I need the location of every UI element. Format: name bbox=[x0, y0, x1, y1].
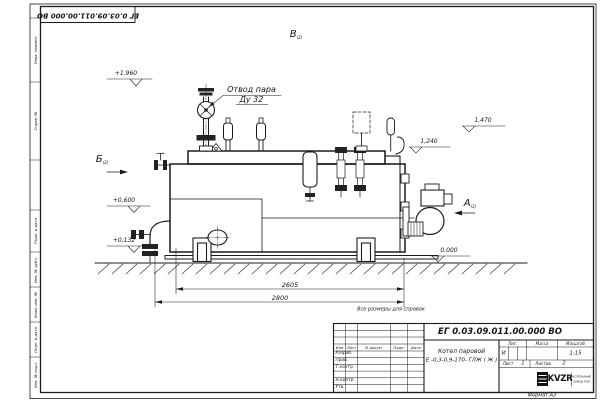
lit-value: И bbox=[502, 351, 506, 357]
margin-label-podp-data-2: Подп. и дата bbox=[34, 327, 38, 353]
sheets-value: 2 bbox=[562, 361, 565, 366]
kvzr-logo-mark bbox=[537, 372, 548, 386]
boiler-body bbox=[165, 144, 438, 262]
level-gauges bbox=[335, 147, 366, 197]
rev-col-list: Лист bbox=[347, 346, 357, 350]
top-designation: ЕГ 0.03.09.011.00.000 ВО bbox=[37, 11, 139, 18]
steam-outlet-valve bbox=[197, 84, 216, 152]
logo-sub-line1: КОТЕЛЬНЫЙ bbox=[572, 375, 590, 378]
logo-text: KVZR bbox=[548, 375, 573, 384]
logo-sub-line2: ЗАВОД РЭП bbox=[573, 380, 590, 383]
elevation-ground: 0,000 bbox=[440, 248, 457, 254]
margin-label-inv-podl: Инв. № подл. bbox=[34, 361, 38, 387]
blueprint-sheet: ЕГ 0.03.09.011.00.000 ВО Перв. примен. С… bbox=[0, 0, 600, 400]
sig-row-nkontr: Н.контр. bbox=[336, 379, 355, 383]
sig-row-tkontr: Т.контр. bbox=[336, 366, 355, 370]
view-letter-a: А bbox=[464, 198, 471, 209]
product-name-line1: Котел паровой bbox=[438, 349, 485, 355]
view-marker-right: А(2) bbox=[464, 199, 477, 209]
ground-line bbox=[95, 263, 527, 274]
view-direction-arrows bbox=[107, 170, 475, 216]
scale-value: 1:15 bbox=[569, 351, 581, 357]
elevation-right-upper: 1,470 bbox=[474, 118, 491, 124]
view-sheet-ref: (2) bbox=[103, 160, 109, 165]
elevation-left-low: +0,132 bbox=[113, 238, 135, 244]
elevation-right-lower: 1,240 bbox=[420, 139, 437, 145]
lit-header: Лит. bbox=[508, 342, 517, 346]
margin-label-perv-primen: Перв. примен. bbox=[34, 36, 38, 65]
elevation-left-mid: +0,600 bbox=[113, 198, 135, 204]
safety-valves bbox=[224, 118, 266, 151]
sig-row-prov: Пров. bbox=[336, 359, 349, 363]
rev-col-podp: Подп. bbox=[393, 346, 405, 350]
dimension-overall-length: 2800 bbox=[272, 295, 289, 302]
view-sheet-ref: (2) bbox=[297, 35, 303, 40]
water-column bbox=[303, 152, 317, 201]
mass-header: Масса bbox=[536, 342, 549, 346]
sheet-value: 1 bbox=[521, 361, 524, 366]
aux-fittings bbox=[353, 112, 404, 154]
steam-annotation-line2: Ду 32 bbox=[240, 96, 264, 104]
sheets-label: Листов bbox=[535, 362, 551, 366]
elevation-steam-top: +1,960 bbox=[115, 71, 137, 77]
view-letter-b: В bbox=[290, 29, 297, 40]
view-letter-bb: Б bbox=[96, 154, 103, 165]
sig-row-utv: Утв. bbox=[336, 386, 345, 390]
scale-header: Масштаб bbox=[566, 342, 585, 346]
titleblock-designation: ЕГ 0.03.09.011.00.000 ВО bbox=[438, 327, 562, 336]
burner bbox=[401, 174, 452, 238]
view-marker-left: Б(2) bbox=[96, 155, 109, 165]
steam-annotation-line1: Отвод пара bbox=[227, 86, 276, 94]
view-marker-top: В(2) bbox=[290, 30, 303, 40]
view-sheet-ref: (2) bbox=[471, 204, 477, 209]
product-name-line2: Е -0,3-0,9-170- ГЛЖ ( Ж ) bbox=[426, 358, 498, 364]
format-note: Формат А3 bbox=[528, 393, 556, 398]
rev-col-izm: Изм bbox=[336, 346, 344, 350]
reference-note: Все размеры для справок bbox=[357, 308, 425, 313]
rev-col-dokum: N докум. bbox=[365, 346, 383, 350]
sheet-label: Лист bbox=[503, 362, 514, 366]
rev-col-data: Дата bbox=[411, 346, 421, 350]
margin-label-inv-dubl: Инв. № дубл. bbox=[34, 257, 38, 283]
margin-label-vzam-inv: Взам. инв. № bbox=[34, 292, 38, 318]
margin-label-podp-data-1: Подп. и дата bbox=[34, 218, 38, 244]
sig-row-razrab: Разраб. bbox=[336, 352, 353, 356]
dimension-inner-length: 2605 bbox=[282, 282, 299, 289]
margin-label-sprav-no: Справ. № bbox=[34, 112, 38, 130]
